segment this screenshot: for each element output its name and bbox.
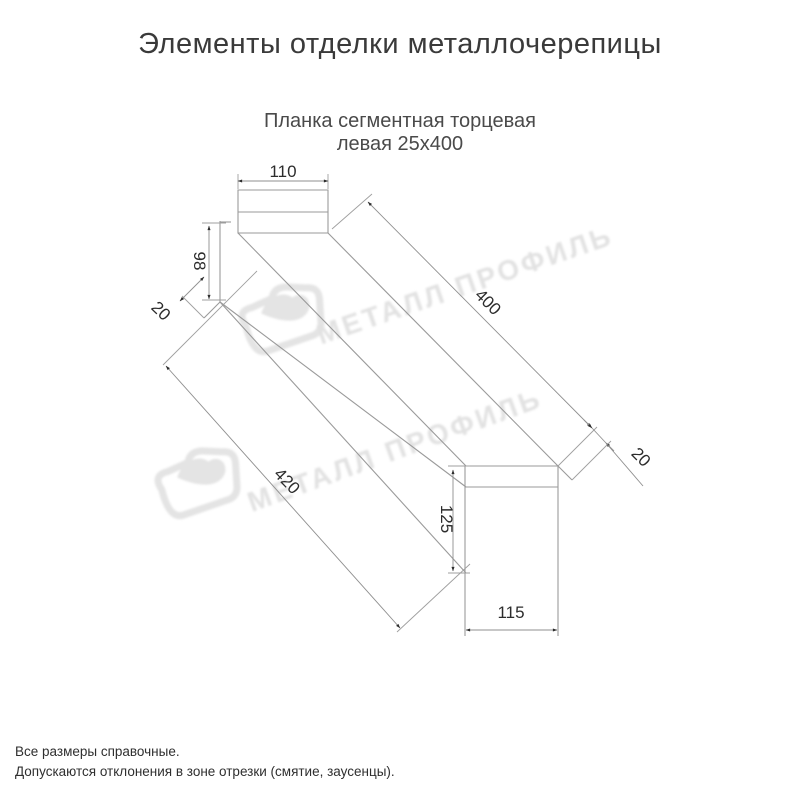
dim-left-fold: 20 bbox=[147, 298, 174, 325]
footer-note-2: Допускаются отклонения в зоне отрезки (с… bbox=[15, 762, 395, 782]
watermark-text: МЕТАЛЛ ПРОФИЛЬ bbox=[313, 220, 617, 351]
watermark-logo-icon bbox=[237, 279, 329, 355]
dim-left-height: 98 bbox=[190, 252, 209, 271]
footer-notes: Все размеры справочные. Допускаются откл… bbox=[15, 742, 395, 782]
watermark-1: МЕТАЛЛ ПРОФИЛЬ bbox=[237, 220, 617, 355]
technical-drawing: МЕТАЛЛ ПРОФИЛЬ МЕТАЛЛ ПРОФИЛЬ bbox=[0, 0, 800, 800]
dim-right-width: 115 bbox=[497, 603, 524, 622]
dim-right-height: 125 bbox=[437, 505, 456, 533]
watermark-text: МЕТАЛЛ ПРОФИЛЬ bbox=[243, 382, 546, 517]
dim-right-fold: 20 bbox=[627, 444, 654, 471]
dim-top-width: 110 bbox=[269, 162, 296, 181]
footer-note-1: Все размеры справочные. bbox=[15, 742, 395, 762]
watermark-2: МЕТАЛЛ ПРОФИЛЬ bbox=[153, 382, 546, 519]
watermark-logo-icon bbox=[153, 443, 245, 519]
